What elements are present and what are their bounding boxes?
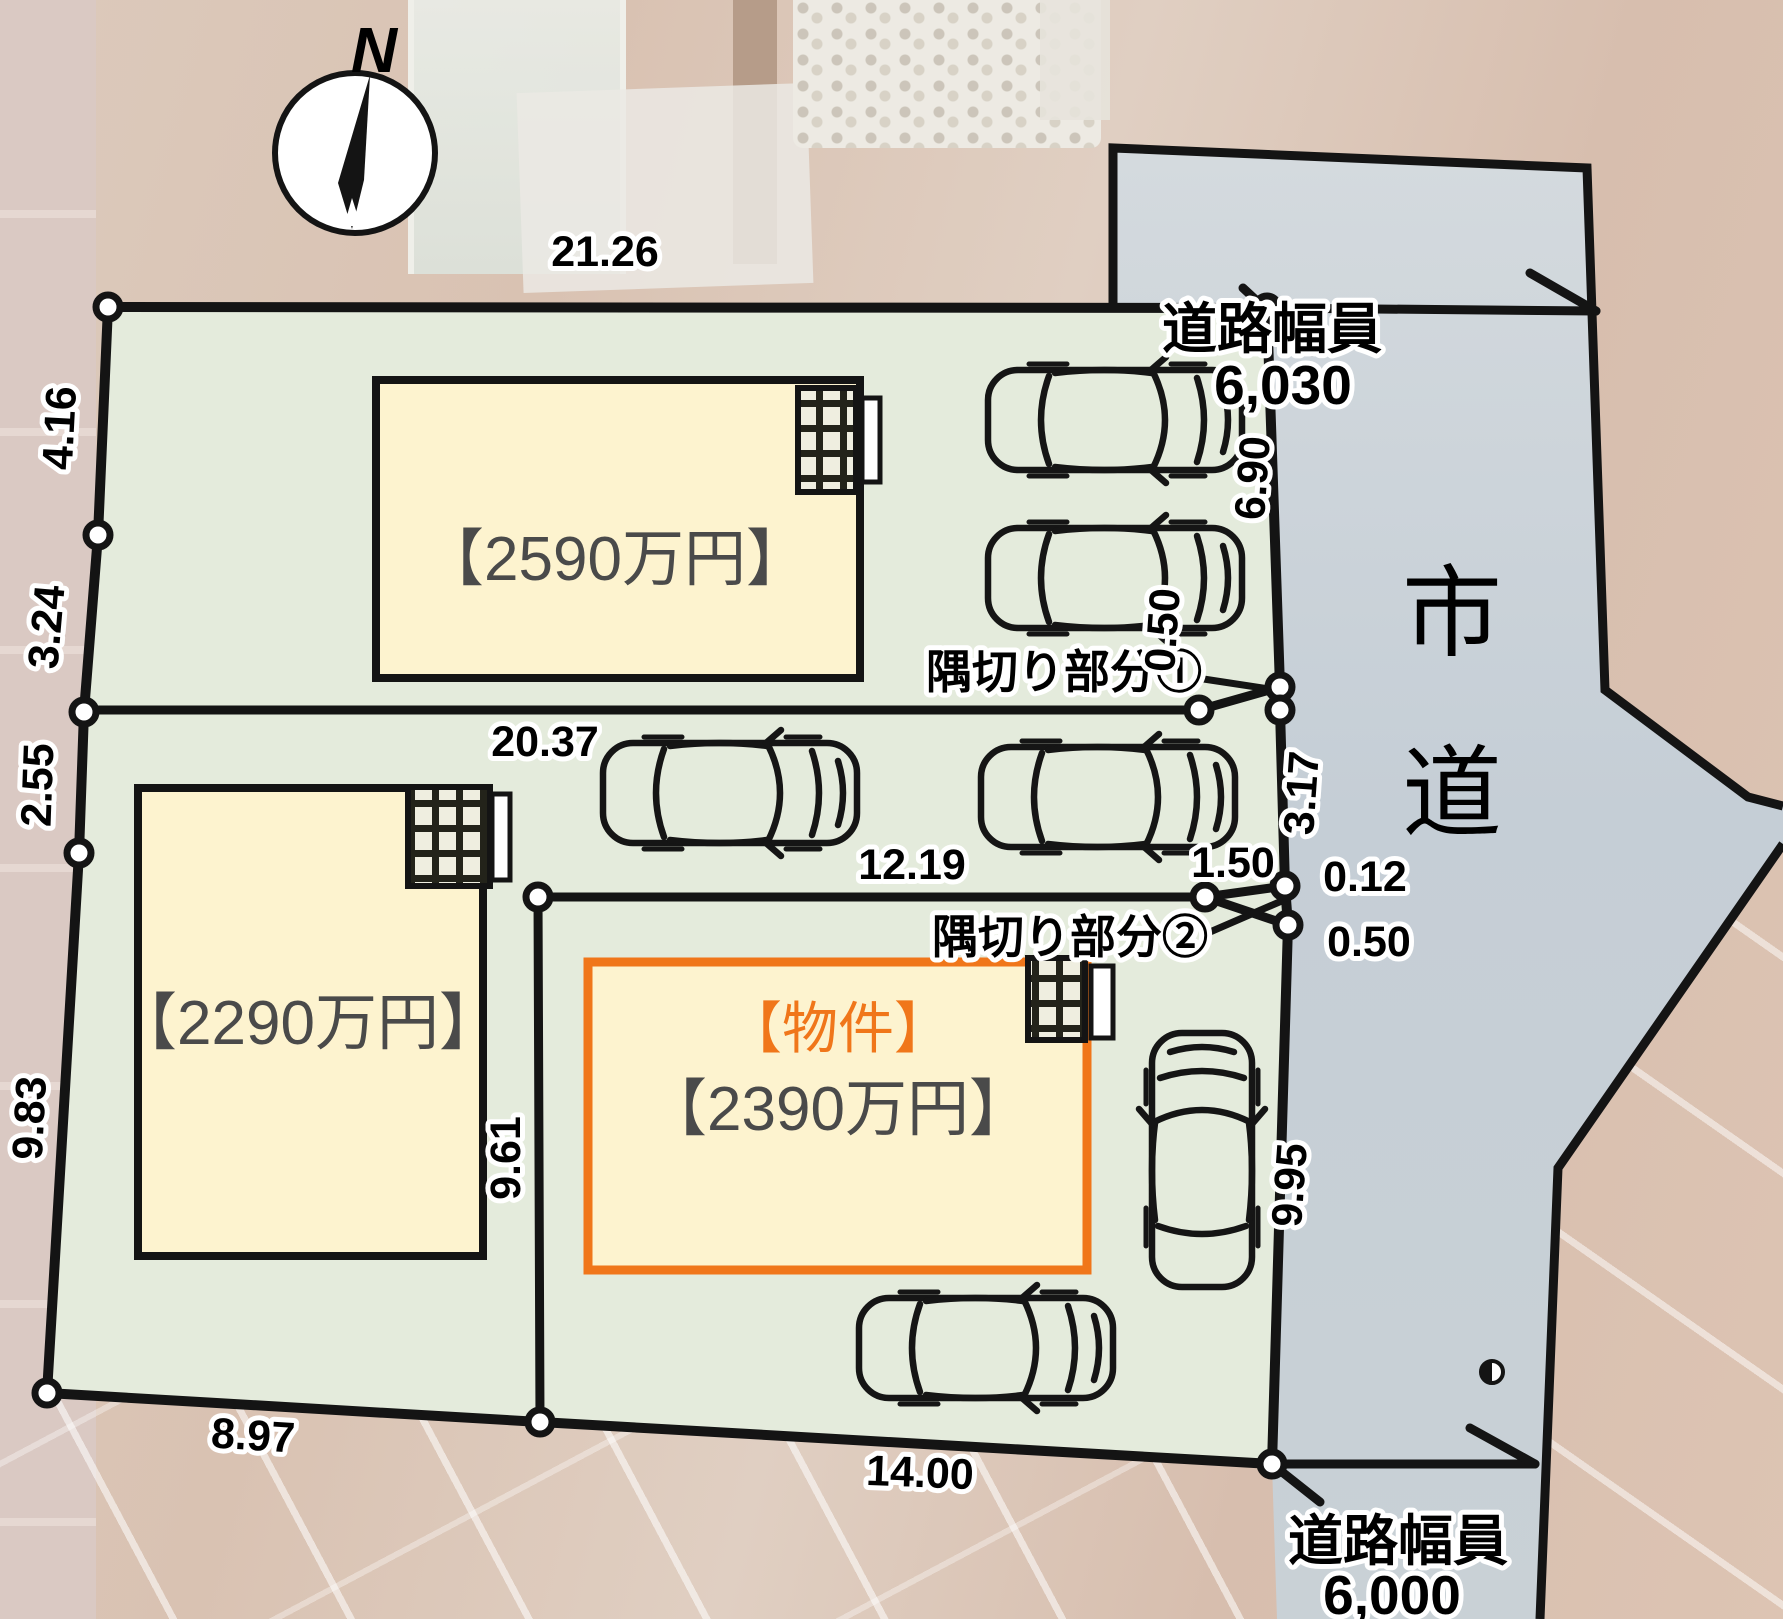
dim-left-3: 2.55 [13,742,64,827]
dim-cut2-3: 0.50 [1327,918,1411,966]
road-name-char-2: 道 [1402,738,1502,850]
road-width-bottom-value: 6,000 [1323,1564,1461,1619]
balcony-step-lot1 [862,398,880,482]
dim-cut2-1: 1.50 [1191,839,1275,887]
road-width-bottom-label: 道路幅員 [1288,1510,1508,1572]
compass: N [275,14,435,233]
plot-plan-image: N 【2590万円】 【2290万円】 【物件】 【2390万円】 市 道 道路… [0,0,1783,1619]
road-width-top-value: 6,030 [1214,354,1352,416]
survey-marker-icon [1481,1361,1503,1383]
lot2-price-label: 【2290万円】 [115,989,501,1058]
dim-right-1: 6.90 [1226,435,1280,522]
lot1-price-label: 【2590万円】 [422,525,808,594]
lot3-price-label: 【2390万円】 [645,1075,1031,1144]
dim-right-3: 9.95 [1263,1142,1317,1229]
dim-lot3-north: 12.19 [858,841,966,889]
dim-bottom-2: 14.00 [865,1447,974,1499]
lot3-subject-tag: 【物件】 [726,997,950,1060]
divider-lot2-lot3-west [538,897,540,1422]
dim-cut2-2: 0.12 [1323,853,1407,901]
compass-north-label: N [351,14,399,86]
corner-cut-2-label: 隅切り部分② [932,911,1208,963]
dim-left-2: 3.24 [19,583,74,671]
balcony-step-lot3 [1091,966,1113,1038]
balcony-grid-lot3 [1028,958,1085,1040]
dim-bottom-1: 8.97 [210,1409,296,1462]
road-width-top-label: 道路幅員 [1162,298,1382,360]
road-name-char-1: 市 [1402,558,1502,670]
balcony-grid-lot2 [408,787,490,886]
dim-left-1: 4.16 [34,385,86,471]
dim-right-cut1: 0.50 [1136,587,1190,674]
dim-top-edge: 21.26 [551,228,659,276]
dim-lot1-south: 20.37 [491,718,599,766]
balcony-step-lot2 [492,794,510,880]
dim-left-4: 9.83 [4,1075,56,1161]
dim-lot3-west: 9.61 [482,1116,530,1200]
dim-right-2: 3.17 [1275,750,1329,837]
balcony-grid-lot1 [798,388,856,492]
